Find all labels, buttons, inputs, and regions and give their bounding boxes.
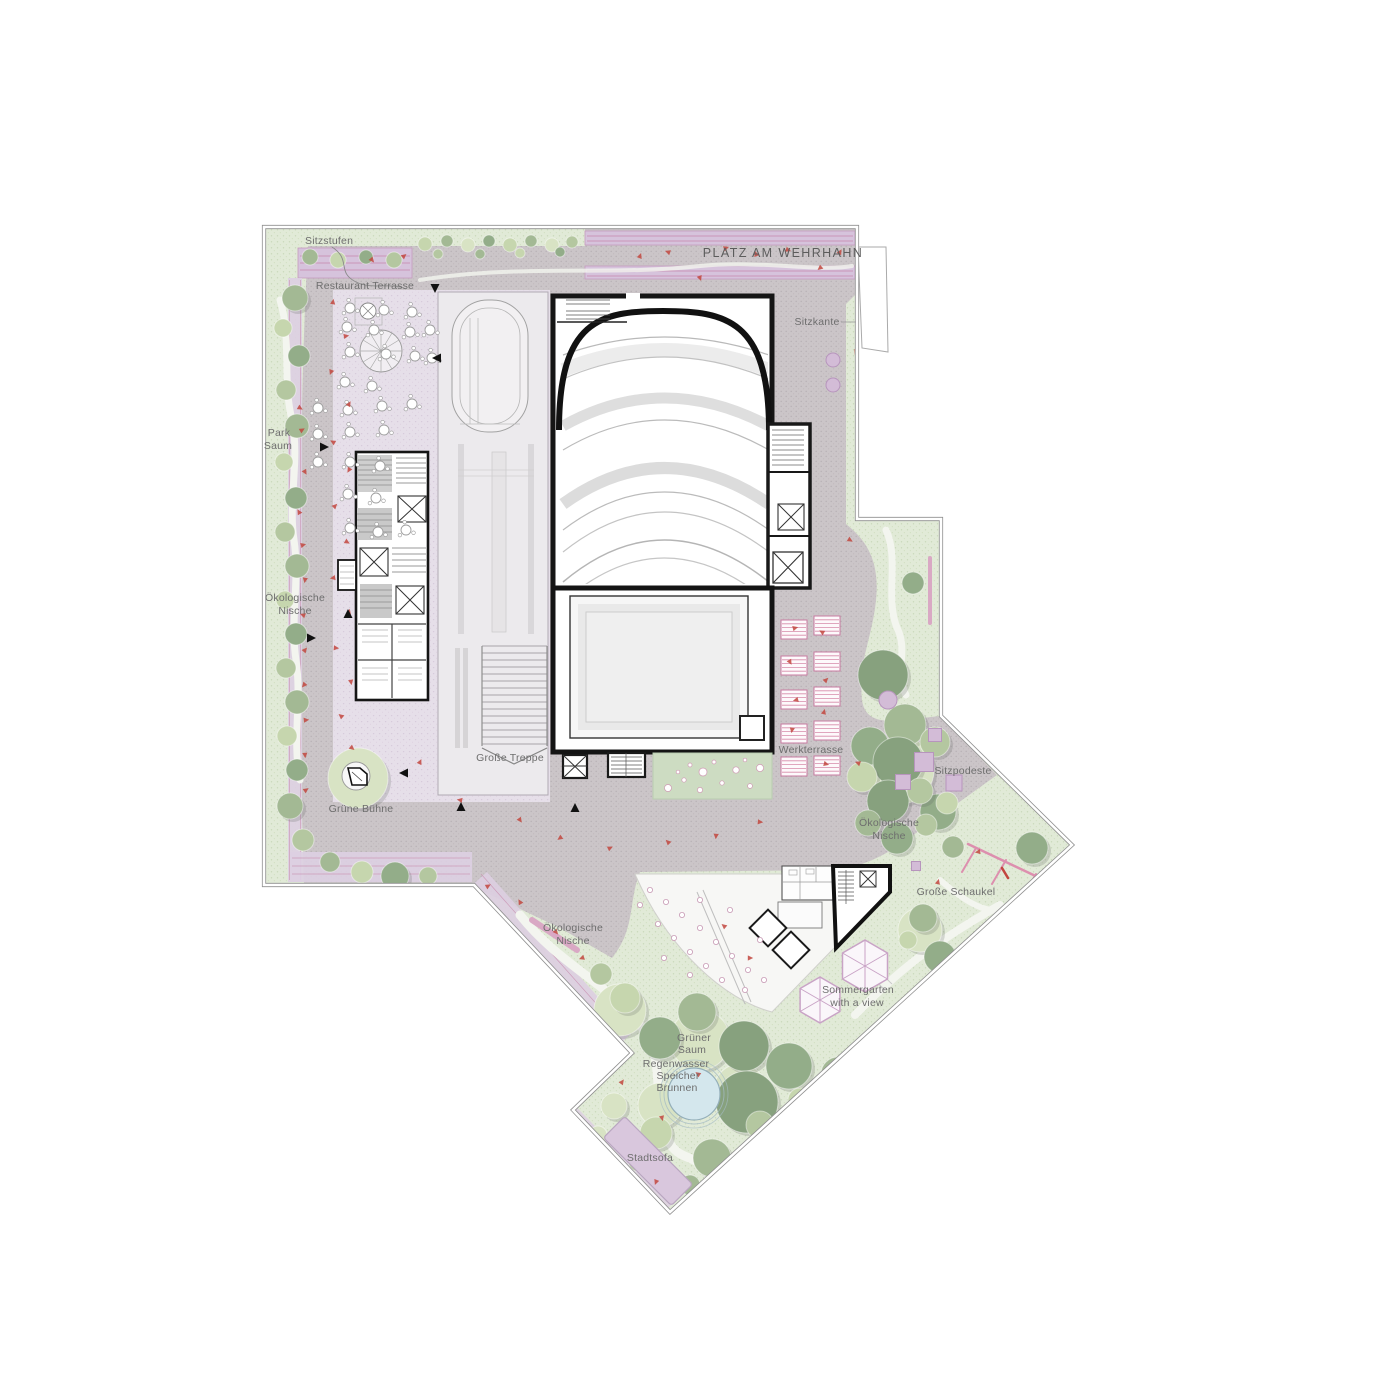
planted-bed — [653, 753, 772, 799]
chair-dot — [373, 488, 377, 492]
chair-dot — [379, 396, 383, 400]
terrace-seat-dot — [687, 949, 692, 954]
tree-canopy — [639, 1017, 681, 1059]
chair-dot — [416, 333, 420, 337]
tree — [277, 726, 297, 746]
tree-canopy — [274, 319, 292, 337]
chair-dot — [402, 335, 406, 339]
table-top — [313, 429, 323, 439]
label-sitzpodeste: Sitzpodeste — [934, 765, 991, 777]
tree-canopy — [292, 829, 314, 851]
theater-hall — [553, 293, 772, 602]
terrace-seat-dot — [647, 887, 652, 892]
tree-canopy — [746, 1111, 774, 1139]
chair-dot — [324, 435, 328, 439]
tree — [320, 852, 340, 872]
chair-dot — [344, 317, 348, 321]
chair-dot — [422, 333, 426, 337]
chair-dot — [381, 300, 385, 304]
tree — [461, 238, 475, 252]
chair-dot — [366, 333, 370, 337]
tree-canopy — [601, 1093, 627, 1119]
chair-dot — [382, 499, 386, 503]
chair-dot — [388, 407, 392, 411]
label-oeko-right-1: Ökologische — [859, 817, 919, 829]
lower-hall — [553, 588, 772, 752]
table-top — [425, 325, 435, 335]
tree-canopy — [276, 658, 296, 678]
chair-dot — [347, 452, 351, 456]
terrace-seat-dot — [697, 925, 702, 930]
purple-seat-dot — [826, 353, 840, 367]
tree-canopy — [560, 1030, 580, 1050]
tree-canopy — [461, 238, 475, 252]
planter-frame — [781, 656, 807, 675]
label-regenwasser-1: Regenwasser — [643, 1058, 710, 1070]
chair-dot — [427, 320, 431, 324]
purple-seat-dot — [879, 691, 897, 709]
chair-dot — [407, 322, 411, 326]
planter-frame — [781, 724, 807, 743]
purple-seat-dot — [826, 378, 840, 392]
label-park: Park — [268, 427, 291, 439]
tree — [566, 236, 578, 248]
label-regenwasser-3: Brunnen — [656, 1082, 697, 1094]
table-top — [345, 523, 355, 533]
chair-dot — [436, 331, 440, 335]
table-top — [407, 307, 417, 317]
tree — [351, 861, 373, 883]
sitzpodest-square — [946, 775, 962, 791]
tree-canopy — [515, 248, 525, 258]
chair-dot — [412, 531, 416, 535]
tree-canopy — [285, 554, 309, 578]
table-top — [340, 377, 350, 387]
tree — [286, 759, 308, 781]
planter-trellis — [814, 756, 840, 775]
table-top — [410, 351, 420, 361]
tree-canopy — [282, 285, 308, 311]
terrace-seat-dot — [729, 953, 734, 958]
tree — [292, 829, 314, 851]
planter-trellis — [781, 656, 807, 675]
chair-dot — [340, 497, 344, 501]
chair-dot — [403, 520, 407, 524]
tree-canopy — [678, 993, 716, 1031]
terrace-seat-dot — [719, 977, 724, 982]
tree-canopy — [821, 1057, 855, 1091]
terrace-seat-dot — [679, 912, 684, 917]
tree-canopy — [419, 867, 437, 885]
chair-dot — [381, 420, 385, 424]
planter-trellis — [781, 690, 807, 709]
chair-dot — [342, 311, 346, 315]
chair-dot — [342, 435, 346, 439]
tree — [285, 554, 309, 578]
tree-canopy — [576, 1061, 598, 1083]
sitzpodest-square — [929, 729, 942, 742]
table-top — [345, 347, 355, 357]
chair-dot — [376, 313, 380, 317]
planter-trellis — [814, 687, 840, 706]
terrace-seat-dot — [661, 955, 666, 960]
chair-dot — [324, 409, 328, 413]
label-sommergarten-2: with a view — [829, 997, 884, 1009]
tree-canopy — [475, 249, 485, 259]
chair-dot — [342, 355, 346, 359]
label-platz-am-wehrhahn: PLATZ AM WEHRHAHN — [703, 246, 863, 260]
tree-canopy — [719, 1021, 769, 1071]
chair-dot — [342, 531, 346, 535]
tree-canopy — [302, 249, 318, 265]
tree — [515, 248, 525, 258]
chair-dot — [315, 424, 319, 428]
table-top — [345, 303, 355, 313]
chair-dot — [368, 501, 372, 505]
table-top — [369, 325, 379, 335]
table-top — [379, 305, 389, 315]
label-grosse-treppe: Große Treppe — [476, 752, 544, 764]
table-top — [405, 327, 415, 337]
tree-canopy — [766, 1043, 812, 1089]
chair-dot — [356, 433, 360, 437]
tree-canopy — [418, 237, 432, 251]
tree — [285, 487, 307, 509]
table-top — [343, 489, 353, 499]
label-oeko-left-1: Ökologische — [265, 592, 325, 604]
terrace-seat-dot — [663, 899, 668, 904]
tree — [275, 522, 295, 542]
table-top — [373, 527, 383, 537]
tree-canopy — [275, 453, 293, 471]
terrace-seat-dot — [697, 897, 702, 902]
tree-canopy — [277, 726, 297, 746]
adjacent-building-outline — [858, 247, 888, 352]
tree-canopy — [942, 836, 964, 858]
planter-trellis — [814, 721, 840, 740]
tree-canopy — [566, 236, 578, 248]
chair-dot — [340, 413, 344, 417]
tree — [590, 963, 612, 985]
terrace-seat-dot — [757, 937, 762, 942]
table-top — [342, 322, 352, 332]
label-grosse-schaukel: Große Schaukel — [917, 886, 996, 898]
chair-dot — [369, 376, 373, 380]
chair-dot — [390, 311, 394, 315]
table-top — [367, 381, 377, 391]
chair-dot — [398, 533, 402, 537]
chair-dot — [375, 522, 379, 526]
label-werkterrasse: Werkterrasse — [779, 744, 844, 756]
sitzpodest-square — [915, 753, 934, 772]
chair-dot — [310, 437, 314, 441]
tree — [560, 1030, 580, 1050]
tree — [525, 235, 537, 247]
tree-canopy — [276, 380, 296, 400]
site-plan-svg: Sitzstufen PLATZ AM WEHRHAHN Restaurant … — [0, 0, 1400, 1400]
label-gruene-buehne: Grüne Bühne — [329, 803, 394, 815]
planter-frame — [814, 687, 840, 706]
tree-canopy — [286, 759, 308, 781]
chair-dot — [421, 357, 425, 361]
tree-canopy — [441, 235, 453, 247]
chair-dot — [418, 313, 422, 317]
tree-canopy — [386, 252, 402, 268]
label-saum: Saum — [264, 440, 292, 452]
tree — [285, 623, 307, 645]
chair-dot — [356, 309, 360, 313]
table-top — [381, 349, 391, 359]
tree-canopy — [610, 983, 640, 1013]
tree — [503, 238, 517, 252]
tree — [418, 237, 432, 251]
tree — [555, 247, 565, 257]
chair-dot — [424, 361, 428, 365]
tree-canopy — [1016, 832, 1048, 864]
chair-dot — [342, 465, 346, 469]
chair-dot — [429, 348, 433, 352]
table-top — [345, 427, 355, 437]
table-top — [377, 401, 387, 411]
label-sommergarten-1: Sommergarten — [822, 984, 894, 996]
label-regenwasser-2: Speicher — [656, 1070, 699, 1082]
planter-trellis — [781, 724, 807, 743]
chair-dot — [364, 389, 368, 393]
sitzpodest-square — [896, 775, 911, 790]
tree-canopy — [285, 690, 309, 714]
tree-canopy — [899, 931, 917, 949]
tree-canopy — [525, 235, 537, 247]
chair-dot — [418, 405, 422, 409]
tree — [942, 836, 964, 858]
tree-canopy — [285, 623, 307, 645]
tree-canopy — [590, 963, 612, 985]
tree-canopy — [902, 572, 924, 594]
label-oeko-bottom-1: Ökologische — [543, 922, 603, 934]
tree — [419, 867, 437, 885]
tree — [483, 235, 495, 247]
chair-dot — [377, 456, 381, 460]
label-sitzstufen: Sitzstufen — [305, 235, 353, 247]
tree-shadow — [864, 1034, 890, 1060]
chair-dot — [374, 409, 378, 413]
chair-dot — [383, 344, 387, 348]
tree-canopy — [359, 250, 373, 264]
chair-dot — [409, 302, 413, 306]
sitzpodest-square — [912, 862, 921, 871]
tree — [899, 931, 917, 949]
tree — [386, 252, 402, 268]
chair-dot — [390, 431, 394, 435]
label-oeko-right-2: Nische — [872, 830, 905, 842]
chair-dot — [315, 452, 319, 456]
table-top — [313, 403, 323, 413]
tree — [285, 690, 309, 714]
chair-dot — [378, 357, 382, 361]
table-top — [407, 399, 417, 409]
terrace-seat-dot — [761, 977, 766, 982]
chair-dot — [356, 529, 360, 533]
chair-dot — [339, 330, 343, 334]
tree-canopy — [351, 861, 373, 883]
tree — [902, 572, 924, 594]
planter-trellis — [814, 616, 840, 635]
tree — [533, 993, 557, 1017]
table-top — [371, 493, 381, 503]
table-top — [375, 461, 385, 471]
terrace-seat-dot — [703, 963, 708, 968]
planter-trellis — [781, 757, 807, 776]
label-restaurant-terrasse: Restaurant Terrasse — [316, 280, 414, 292]
chair-dot — [407, 359, 411, 363]
tree-canopy — [320, 852, 340, 872]
terrace-seat-dot — [637, 902, 642, 907]
tree-canopy — [936, 792, 958, 814]
chair-dot — [356, 463, 360, 467]
tree — [276, 380, 296, 400]
hall-annex — [768, 424, 810, 588]
gruene-buehne-stage — [342, 762, 370, 790]
table-top — [343, 405, 353, 415]
tree — [288, 345, 310, 367]
tree — [475, 249, 485, 259]
architectural-site-plan: Sitzstufen PLATZ AM WEHRHAHN Restaurant … — [0, 0, 1400, 1400]
table-top — [379, 425, 389, 435]
tree — [441, 235, 453, 247]
label-oeko-left-2: Nische — [278, 605, 311, 617]
tree — [276, 658, 296, 678]
chair-dot — [310, 411, 314, 415]
planter-frame — [814, 616, 840, 635]
chair-dot — [342, 372, 346, 376]
terrace-seat-dot — [742, 987, 747, 992]
tree — [359, 250, 373, 264]
chair-dot — [351, 383, 355, 387]
planter-frame — [814, 721, 840, 740]
chair-dot — [354, 495, 358, 499]
chair-dot — [347, 342, 351, 346]
planter-frame — [781, 757, 807, 776]
tree — [821, 1057, 858, 1094]
chair-dot — [409, 394, 413, 398]
tree-canopy — [433, 249, 443, 259]
chair-dot — [380, 331, 384, 335]
chair-dot — [310, 465, 314, 469]
planter-frame — [781, 690, 807, 709]
terrace-seat-dot — [655, 921, 660, 926]
chair-dot — [376, 433, 380, 437]
chair-dot — [392, 355, 396, 359]
chair-dot — [345, 484, 349, 488]
label-gruener-saum-2: Saum — [678, 1044, 706, 1056]
chair-dot — [347, 422, 351, 426]
tree-canopy — [909, 904, 937, 932]
terrace-seat-dot — [727, 907, 732, 912]
chair-dot — [404, 407, 408, 411]
tree — [275, 453, 293, 471]
label-oeko-bottom-2: Nische — [556, 935, 589, 947]
terrace-seat-dot — [687, 972, 692, 977]
chair-dot — [315, 398, 319, 402]
tree-canopy — [533, 993, 557, 1017]
tree-canopy — [288, 345, 310, 367]
chair-dot — [353, 328, 357, 332]
chair-dot — [371, 320, 375, 324]
chair-dot — [412, 346, 416, 350]
table-top — [401, 525, 411, 535]
person-figure-icon — [899, 1009, 906, 1016]
chair-dot — [384, 533, 388, 537]
planter-frame — [814, 756, 840, 775]
foyer-wing — [438, 292, 548, 795]
hall-entry-gap — [626, 293, 640, 300]
chair-dot — [347, 298, 351, 302]
chair-dot — [378, 387, 382, 391]
chair-dot — [370, 535, 374, 539]
tree-canopy — [555, 247, 565, 257]
table-top — [345, 457, 355, 467]
chair-dot — [372, 469, 376, 473]
tree — [433, 249, 443, 259]
chair-dot — [354, 411, 358, 415]
tree-canopy — [275, 522, 295, 542]
chair-dot — [347, 518, 351, 522]
chair-dot — [337, 385, 341, 389]
planter-trellis — [814, 652, 840, 671]
chair-dot — [404, 315, 408, 319]
tree — [302, 249, 318, 265]
terrace-seat-dot — [713, 939, 718, 944]
tree — [576, 1061, 598, 1083]
person-figure-icon — [601, 1155, 607, 1161]
tree-canopy — [277, 793, 303, 819]
planter-frame — [814, 652, 840, 671]
chair-dot — [386, 467, 390, 471]
tree — [936, 792, 958, 814]
table-top — [313, 457, 323, 467]
chair-dot — [356, 353, 360, 357]
terrace-seat-dot — [745, 967, 750, 972]
tree-canopy — [285, 487, 307, 509]
label-stadtsofa: Stadtsofa — [627, 1152, 673, 1164]
label-gruener-saum-1: Grüner — [677, 1032, 711, 1044]
tree-canopy — [483, 235, 495, 247]
terrace-seat-dot — [671, 935, 676, 940]
chair-dot — [324, 463, 328, 467]
tree — [274, 319, 292, 337]
tree-canopy — [503, 238, 517, 252]
label-sitzkante: Sitzkante — [795, 316, 840, 328]
